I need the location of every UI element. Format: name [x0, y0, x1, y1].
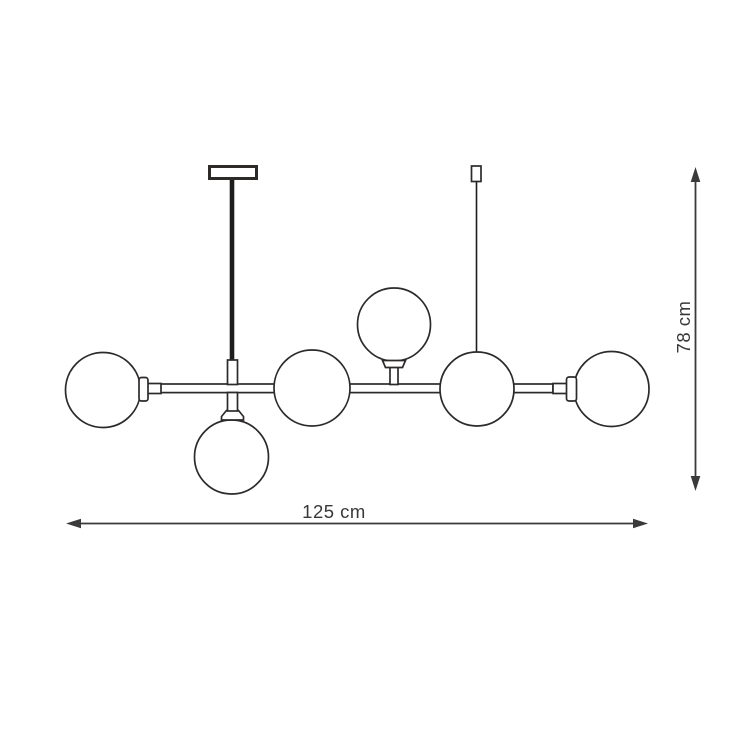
globe-6-right: [574, 352, 649, 427]
rod-bar-joint-upper: [228, 360, 238, 385]
width-arrowhead-left: [66, 519, 81, 529]
wire-canopy-mount: [472, 166, 482, 182]
globe-5-wire: [440, 352, 514, 426]
globe-2-bottom: [195, 420, 269, 494]
width-dimension-label: 125 cm: [302, 501, 366, 522]
height-dimension-label: 78 cm: [673, 301, 694, 354]
height-dimension: 78 cm: [673, 167, 700, 491]
globe-1-left: [66, 353, 141, 428]
left-globe-neck: [148, 384, 162, 394]
chandelier-fixture: [66, 166, 650, 494]
right-globe-cap: [567, 377, 577, 401]
height-arrowhead-bottom: [691, 476, 701, 491]
rod-bar-joint-lower: [228, 393, 238, 412]
right-globe-neck: [553, 384, 568, 394]
top-globe-cap: [383, 361, 406, 368]
top-globe-stem: [390, 367, 398, 385]
width-arrowhead-right: [633, 519, 648, 529]
globe-3-center: [274, 350, 350, 426]
product-dimension-diagram: 125 cm 78 cm: [0, 0, 750, 750]
globe-4-top: [358, 288, 431, 361]
bottom-globe-cap: [222, 411, 244, 421]
left-globe-cap: [139, 378, 148, 402]
height-arrowhead-top: [691, 167, 701, 182]
width-dimension: 125 cm: [66, 501, 648, 528]
ceiling-mount-plate: [210, 167, 257, 179]
chandelier-drawing-canvas: 125 cm 78 cm: [0, 0, 750, 750]
